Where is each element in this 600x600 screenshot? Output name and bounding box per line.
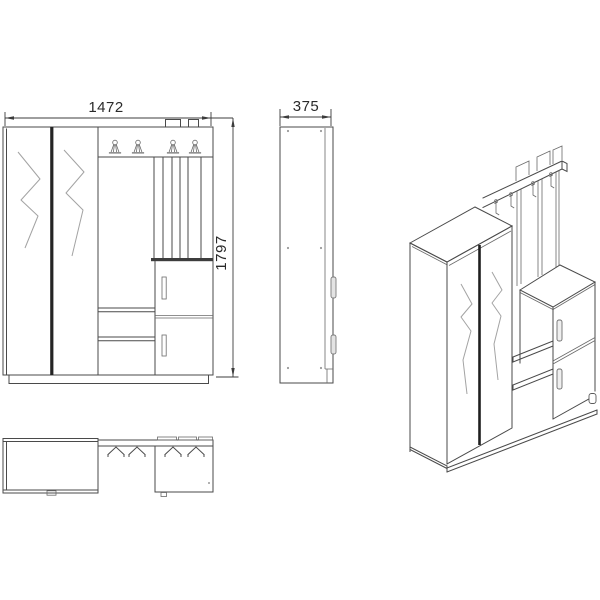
dimension-depth: 375	[280, 98, 331, 126]
isometric-view	[410, 146, 597, 472]
technical-drawing-page: 1472 1797 375	[0, 0, 600, 600]
iso-shelf	[513, 341, 553, 362]
iso-cabinet-door-gap	[553, 338, 595, 365]
width-dimension-label: 1472	[88, 99, 123, 116]
cabinet-door-gap	[155, 316, 213, 318]
iso-cabinet-top	[520, 265, 595, 307]
front-plinth	[9, 375, 209, 384]
iso-door-zigzag	[461, 284, 472, 394]
iso-cabinet-foot	[589, 394, 596, 404]
wardrobe-plan	[3, 439, 98, 494]
iso-cabinet-handle	[557, 320, 562, 341]
back-slats	[154, 157, 201, 258]
front-left-side-panel	[3, 127, 7, 375]
depth-dimension-label: 375	[293, 98, 320, 115]
coat-hook-plan-icon	[165, 447, 181, 457]
height-dimension-label: 1797	[213, 235, 230, 270]
dimension-height: 1797	[211, 118, 239, 377]
cabinet-plan	[155, 446, 213, 492]
wardrobe-door-divider	[50, 127, 53, 375]
iso-shelf	[513, 369, 553, 390]
front-view	[3, 120, 213, 384]
side-view	[280, 127, 336, 383]
coat-hook-plan-icon	[129, 447, 145, 457]
coat-hook-icon	[189, 140, 200, 153]
iso-wardrobe-side	[410, 243, 447, 466]
rack-panel-plan	[98, 440, 213, 446]
slat-top-tab	[189, 120, 199, 128]
cabinet-foot-mark	[161, 493, 167, 497]
cabinet-handle	[162, 277, 166, 299]
side-handle	[331, 335, 336, 354]
coat-hook-plan-icon	[188, 447, 204, 457]
iso-door-zigzag	[492, 272, 502, 380]
coat-hook-icon	[132, 140, 143, 153]
door-zigzag-decor-right	[64, 150, 84, 256]
coat-hook-icon	[167, 140, 178, 153]
slat-top-tab	[166, 120, 181, 128]
technical-drawing-canvas: 1472 1797 375	[0, 0, 600, 600]
coat-hook-icon	[109, 140, 120, 153]
cabinet-handle	[162, 335, 166, 356]
iso-plinth	[410, 410, 597, 472]
door-zigzag-decor-left	[18, 152, 40, 248]
iso-cabinet-handle	[557, 369, 562, 389]
open-shelves	[98, 308, 155, 341]
side-handle	[331, 277, 336, 298]
iso-hook-rail	[483, 161, 567, 208]
coat-hook-plan-icon	[108, 447, 124, 457]
iso-slat-tabs	[516, 146, 562, 181]
cabinet-top-board	[151, 258, 213, 261]
top-plan-view	[3, 437, 213, 497]
